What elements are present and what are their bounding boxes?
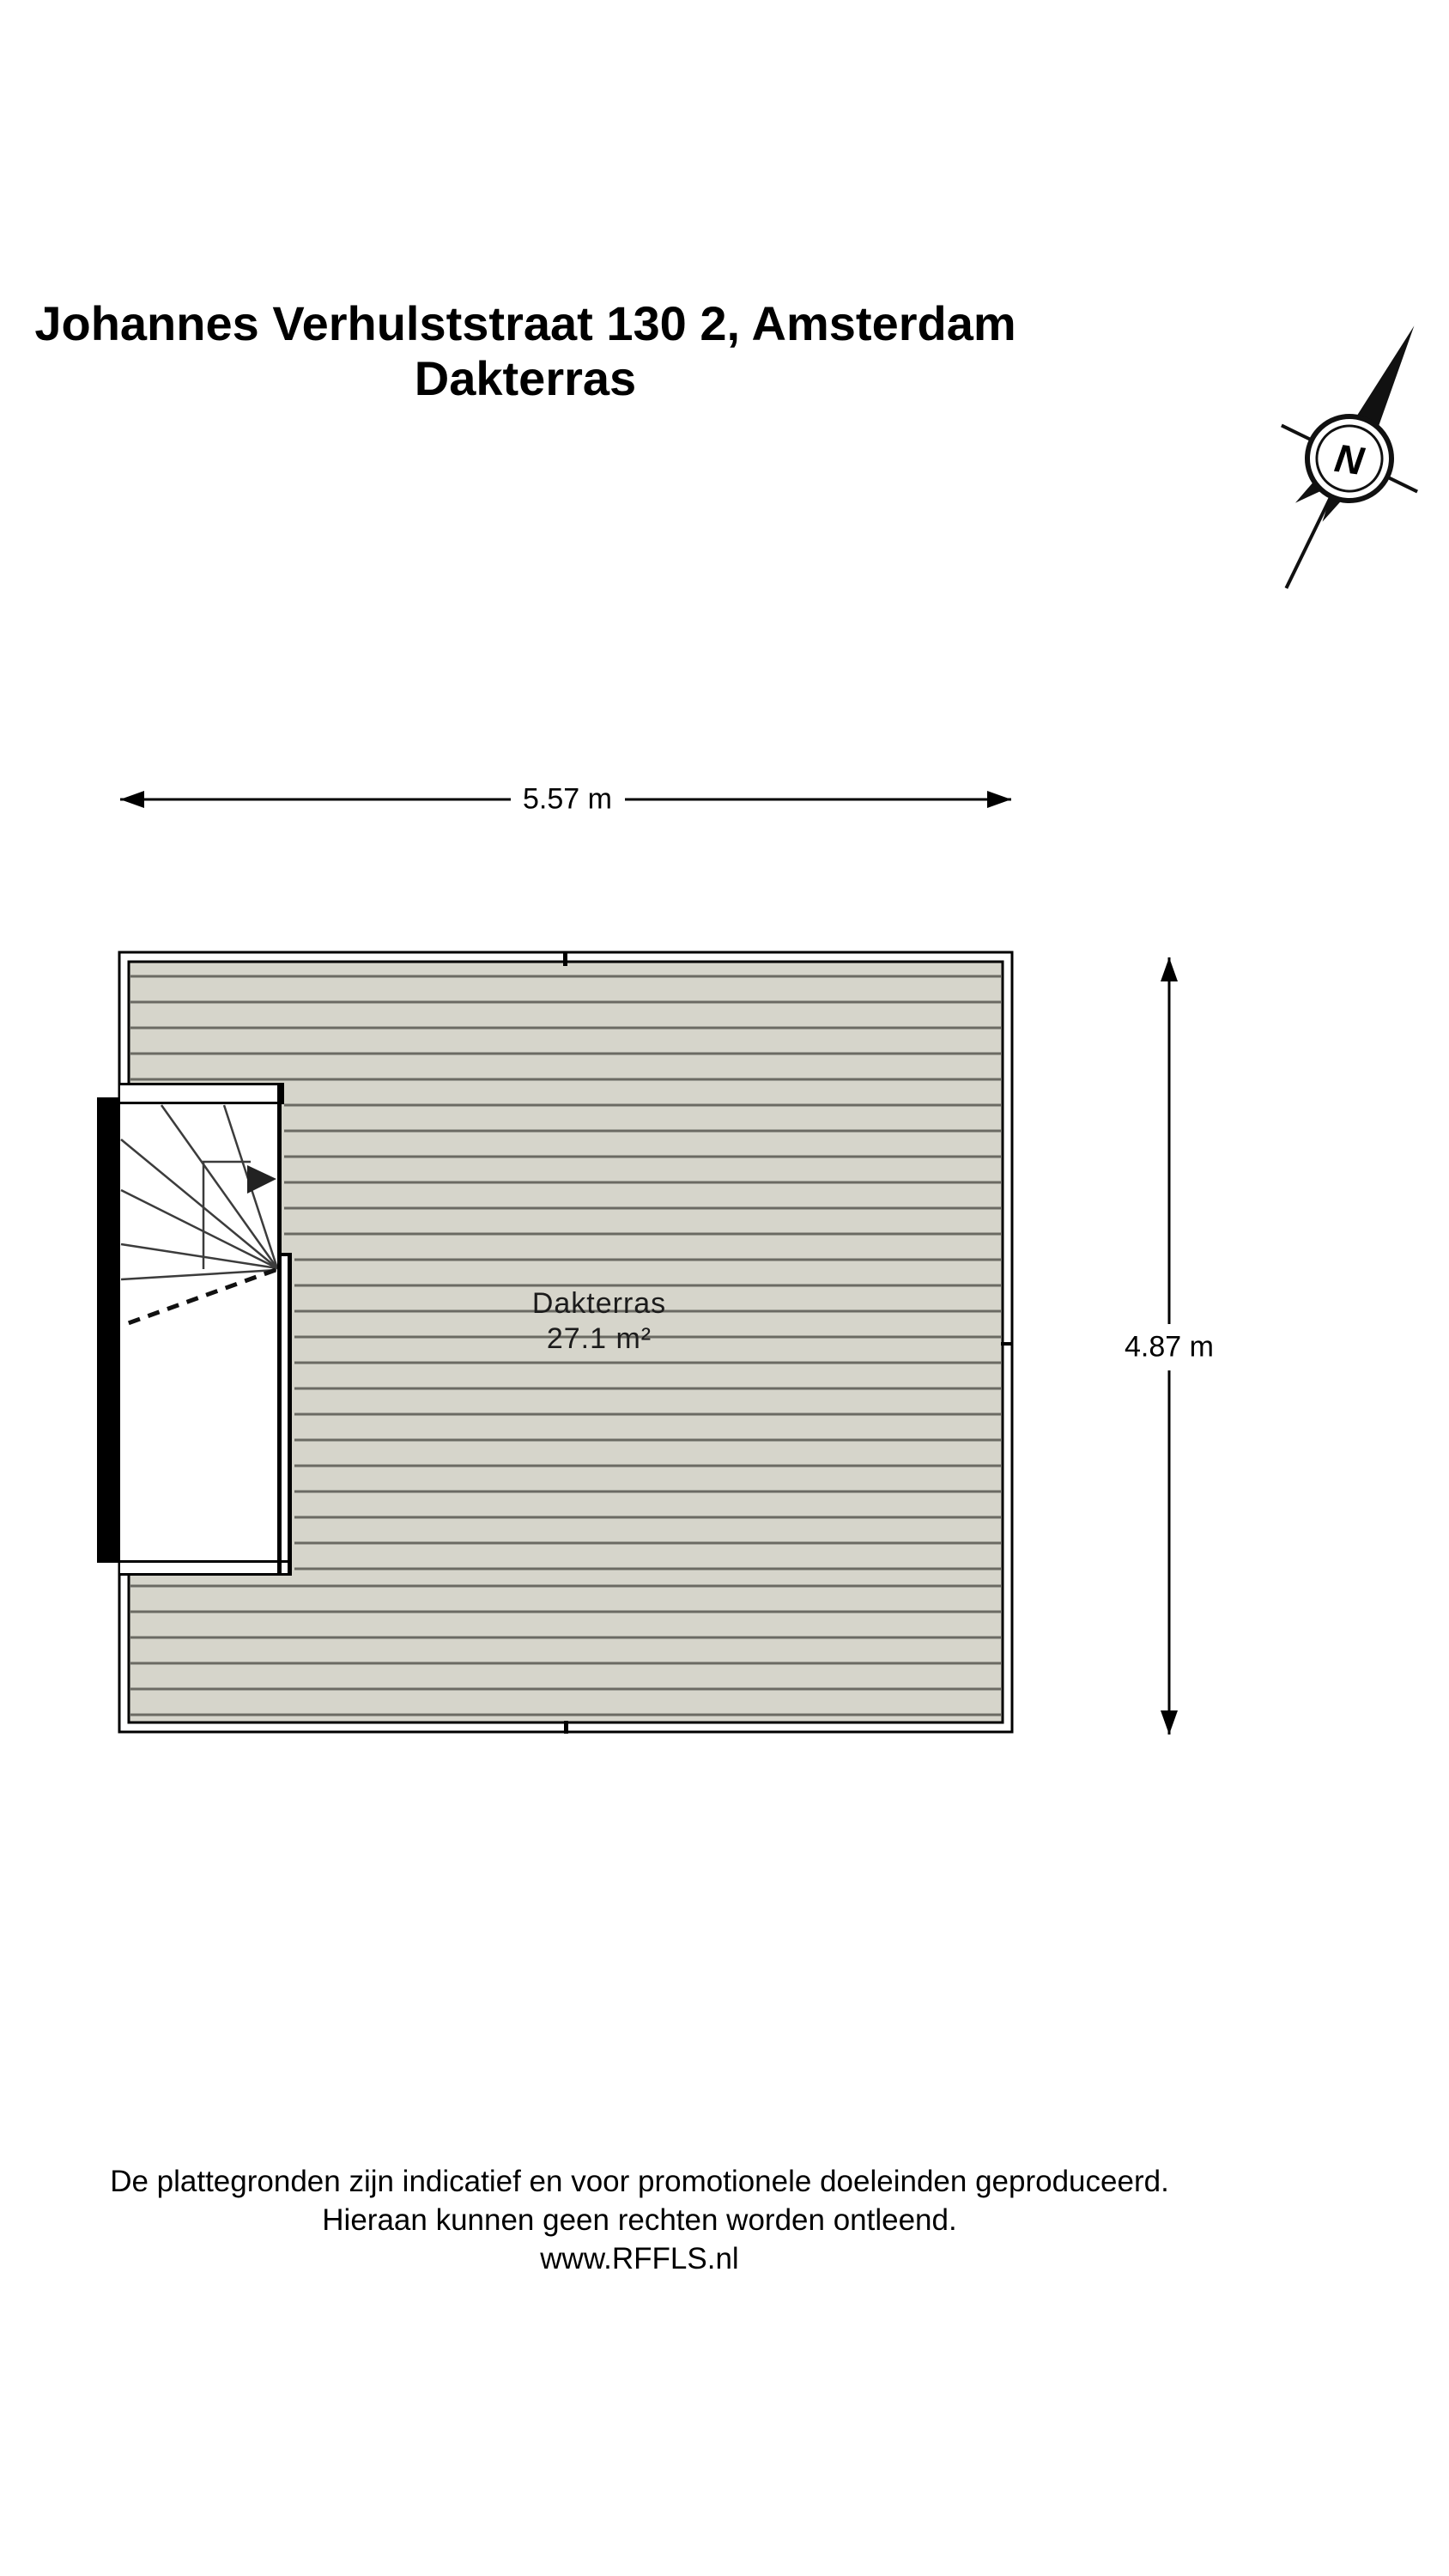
stairwell-wall-top-outer <box>120 1083 284 1085</box>
wall-joint-right <box>1001 1342 1013 1346</box>
arrow-down-icon <box>1161 1710 1178 1735</box>
wall-joint-top <box>563 953 567 966</box>
stairwell-wall-top-inner <box>120 1102 280 1104</box>
disclaimer-line2: Hieraan kunnen geen rechten worden ontle… <box>110 2201 1169 2239</box>
deck-edge-cap <box>282 1253 292 1256</box>
arrow-left-icon <box>120 791 144 808</box>
page-title: Johannes Verhulststraat 130 2, Amsterdam… <box>34 296 1016 406</box>
room-name: Dakterras <box>532 1286 666 1321</box>
room-area: 27.1 m² <box>532 1321 666 1357</box>
room-label: Dakterras 27.1 m² <box>532 1286 666 1357</box>
stairwell-wall-bottom-inner <box>120 1560 292 1563</box>
arrow-up-icon <box>1161 957 1178 981</box>
dimension-height-label: 4.87 m <box>1125 1331 1214 1364</box>
website: www.RFFLS.nl <box>110 2239 1169 2278</box>
compass-icon: N <box>1218 293 1449 622</box>
wall-joint-bottom <box>564 1721 568 1734</box>
disclaimer: De plattegronden zijn indicatief en voor… <box>110 2162 1169 2278</box>
stairwell-wall-right <box>277 1083 282 1573</box>
dimension-width-label: 5.57 m <box>523 783 612 817</box>
deck-edge-line <box>288 1255 292 1576</box>
thick-wall <box>97 1097 120 1563</box>
stairs <box>97 1083 292 1576</box>
arrow-right-icon <box>987 791 1011 808</box>
stairwell-floor <box>120 1083 282 1576</box>
stairwell-wall-bottom-outer <box>120 1573 292 1576</box>
page-title-address: Johannes Verhulststraat 130 2, Amsterdam <box>34 296 1016 351</box>
page-title-floor: Dakterras <box>34 351 1016 406</box>
disclaimer-line1: De plattegronden zijn indicatief en voor… <box>110 2162 1169 2201</box>
